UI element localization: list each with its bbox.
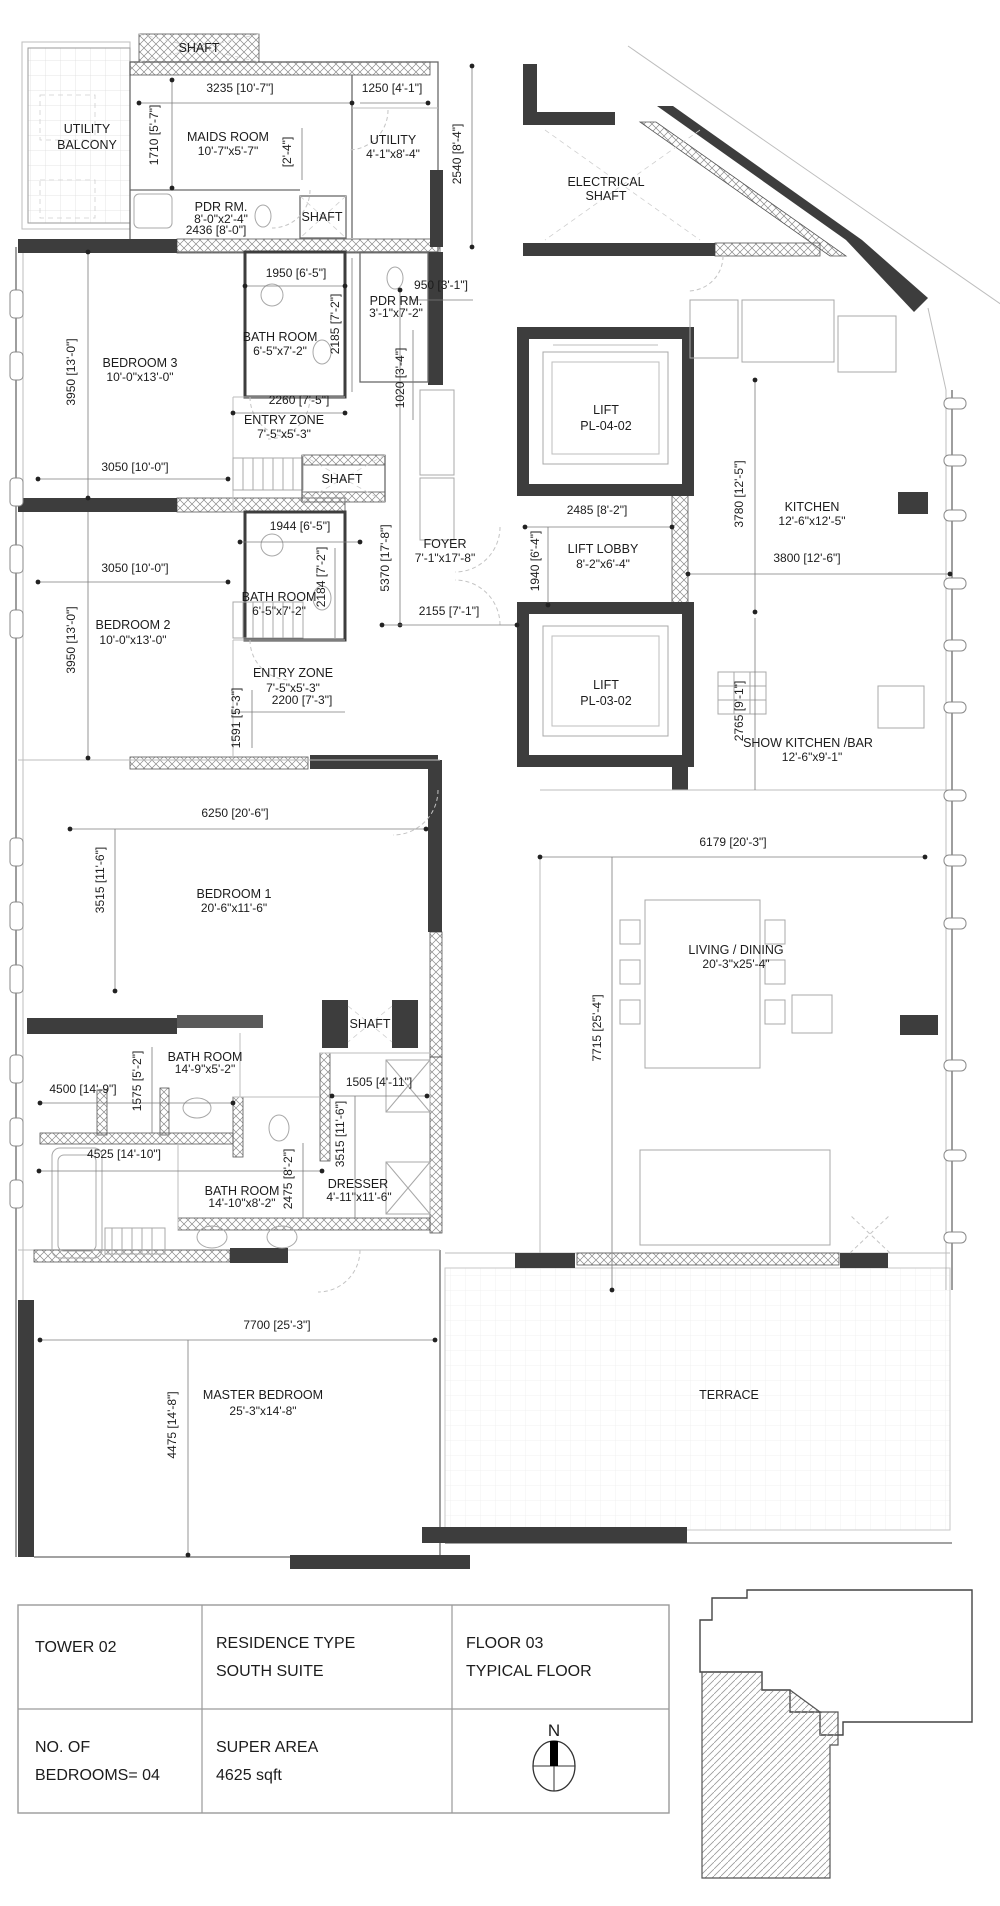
- dim-2-4: [2'-4"]: [280, 137, 294, 168]
- room-label-show-kitchen: SHOW KITCHEN /BAR: [743, 736, 873, 750]
- dim-3950a: 3950 [13'-0"]: [64, 338, 78, 405]
- dim-7700: 7700 [25'-3"]: [243, 1318, 310, 1332]
- dim-1950: 1950 [6'-5"]: [266, 266, 327, 280]
- room-label-utility-balcony-1: UTILITY: [64, 122, 111, 136]
- key-plan-highlighted-unit: [702, 1672, 838, 1878]
- room-size-bedroom2: 10'-0"x13'-0": [99, 633, 166, 647]
- titleblock-area-2: 4625 sqft: [216, 1767, 282, 1784]
- dim-3800: 3800 [12'-6"]: [773, 551, 840, 565]
- room-label-living: LIVING / DINING: [688, 943, 783, 957]
- dim-4500: 4500 [14'-9"]: [49, 1082, 116, 1096]
- dim-2185: 2185 [7'-2"]: [328, 294, 342, 355]
- dim-1591: 1591 [5'-3"]: [229, 688, 243, 749]
- dim-2540: 2540 [8'-4"]: [450, 124, 464, 185]
- room-label-bedroom3: BEDROOM 3: [102, 356, 177, 370]
- dim-2200: 2200 [7'-3"]: [272, 693, 333, 707]
- titleblock-area-1: SUPER AREA: [216, 1739, 319, 1756]
- dim-3780: 3780 [12'-5"]: [732, 460, 746, 527]
- titleblock-bedrooms-1: NO. OF: [35, 1739, 90, 1756]
- dim-2475: 2475 [8'-2"]: [281, 1149, 295, 1210]
- room-size-show-kitchen: 12'-6"x9'-1": [782, 750, 842, 764]
- key-plan: [700, 1590, 972, 1878]
- dim-1575: 1575 [5'-2"]: [130, 1051, 144, 1112]
- room-label-shaft-a: SHAFT: [302, 210, 343, 224]
- dim-4525: 4525 [14'-10"]: [87, 1147, 161, 1161]
- floor-plan-drawing: SHAFT UTILITY BALCONY MAIDS ROOM 10'-7"x…: [0, 0, 1000, 1901]
- dim-2436: 2436 [8'-0"]: [186, 223, 247, 237]
- room-label-bath2: BATH ROOM: [242, 590, 317, 604]
- room-label-electrical-2: SHAFT: [586, 189, 627, 203]
- titleblock-residence-type-1: RESIDENCE TYPE: [216, 1635, 355, 1652]
- room-label-shaft-top: SHAFT: [179, 41, 220, 55]
- titleblock-tower: TOWER 02: [35, 1639, 117, 1656]
- titleblock-floor-2: TYPICAL FLOOR: [466, 1663, 592, 1680]
- room-size-bath3: 6'-5"x7'-2": [253, 344, 307, 358]
- room-size-lobby: 8'-2"x6'-4": [576, 557, 630, 571]
- floor-plan-sheet: SHAFT UTILITY BALCONY MAIDS ROOM 10'-7"x…: [0, 0, 1000, 1901]
- dim-3050a: 3050 [10'-0"]: [101, 460, 168, 474]
- room-size-dresser: 4'-11"x11'-6": [326, 1190, 391, 1204]
- dim-1710: 1710 [5'-7"]: [147, 105, 161, 166]
- fixtures: [40, 95, 924, 1258]
- room-label-utility: UTILITY: [370, 133, 417, 147]
- room-size-kitchen: 12'-6"x12'-5": [778, 514, 845, 528]
- dim-1020: 1020 [3'-4"]: [393, 348, 407, 409]
- room-label-lift1: LIFT: [593, 403, 619, 417]
- room-size-bedroom3: 10'-0"x13'-0": [106, 370, 173, 384]
- room-label-lift2: LIFT: [593, 678, 619, 692]
- room-size-bedroom1: 20'-6"x11'-6": [201, 901, 267, 915]
- room-label-bath3: BATH ROOM: [243, 330, 318, 344]
- dim-1940: 1940 [6'-4"]: [528, 531, 542, 592]
- room-label-entry1: ENTRY ZONE: [244, 413, 324, 427]
- dim-1505: 1505 [4'-11"]: [346, 1075, 412, 1089]
- titleblock-bedrooms-2: BEDROOMS= 04: [35, 1767, 160, 1784]
- room-size-foyer: 7'-1"x17'-8": [415, 551, 475, 565]
- dim-3235: 3235 [10'-7"]: [206, 81, 273, 95]
- dim-950: 950 [3'-1"]: [414, 278, 468, 292]
- room-code-lift2: PL-03-02: [580, 694, 631, 708]
- room-code-lift1: PL-04-02: [580, 419, 631, 433]
- dim-2155: 2155 [7'-1"]: [419, 604, 480, 618]
- dim-3515b: 3515 [11'-6"]: [333, 1101, 347, 1167]
- room-label-terrace: TERRACE: [699, 1388, 759, 1402]
- dim-2260: 2260 [7'-5"]: [269, 393, 330, 407]
- room-label-master: MASTER BEDROOM: [203, 1388, 323, 1402]
- room-size-pdr2: 3'-1"x7'-2": [369, 306, 423, 320]
- room-label-bedroom1: BEDROOM 1: [196, 887, 271, 901]
- dim-7715: 7715 [25'-4"]: [590, 994, 604, 1061]
- dim-2485: 2485 [8'-2"]: [567, 503, 628, 517]
- dim-1250: 1250 [4'-1"]: [362, 81, 423, 95]
- room-size-bathm1: 14'-9"x5'-2": [175, 1062, 235, 1076]
- room-size-living: 20'-3"x25'-4": [702, 957, 769, 971]
- room-size-entry1: 7'-5"x5'-3": [257, 427, 311, 441]
- title-block: TOWER 02 RESIDENCE TYPE SOUTH SUITE FLOO…: [18, 1605, 669, 1813]
- dim-1944: 1944 [6'-5"]: [270, 519, 331, 533]
- room-size-utility: 4'-1"x8'-4": [366, 147, 420, 161]
- room-size-maids: 10'-7"x5'-7": [198, 144, 258, 158]
- room-label-utility-balcony-2: BALCONY: [57, 138, 117, 152]
- dim-2184: 2184 [7'-2"]: [314, 547, 328, 608]
- room-label-kitchen: KITCHEN: [785, 500, 840, 514]
- room-label-electrical-1: ELECTRICAL: [567, 175, 644, 189]
- dim-3950b: 3950 [13'-0"]: [64, 606, 78, 673]
- room-label-maids: MAIDS ROOM: [187, 130, 269, 144]
- room-size-master: 25'-3"x14'-8": [229, 1404, 296, 1418]
- dim-4475: 4475 [14'-8"]: [165, 1391, 179, 1458]
- north-label: N: [548, 1721, 560, 1740]
- dim-6250: 6250 [20'-6"]: [201, 806, 268, 820]
- room-label-dresser: DRESSER: [328, 1177, 388, 1191]
- dim-6179: 6179 [20'-3"]: [699, 835, 766, 849]
- room-label-bedroom2: BEDROOM 2: [95, 618, 170, 632]
- room-label-shaft-c: SHAFT: [350, 1017, 391, 1031]
- dim-3515a: 3515 [11'-6"]: [93, 847, 107, 913]
- outer-walls: [16, 42, 1000, 1557]
- titleblock-residence-type-2: SOUTH SUITE: [216, 1663, 324, 1680]
- dim-5370: 5370 [17'-8"]: [378, 524, 392, 591]
- room-label-lobby: LIFT LOBBY: [568, 542, 639, 556]
- dim-2765: 2765 [9'-1"]: [732, 681, 746, 742]
- room-size-bathm2: 14'-10"x8'-2": [208, 1196, 275, 1210]
- titleblock-floor-1: FLOOR 03: [466, 1635, 543, 1652]
- room-label-foyer: FOYER: [423, 537, 466, 551]
- room-label-shaft-b: SHAFT: [322, 472, 363, 486]
- room-size-bath2: 6'-5"x7'-2": [252, 604, 306, 618]
- dim-3050b: 3050 [10'-0"]: [101, 561, 168, 575]
- room-label-entry2: ENTRY ZONE: [253, 666, 333, 680]
